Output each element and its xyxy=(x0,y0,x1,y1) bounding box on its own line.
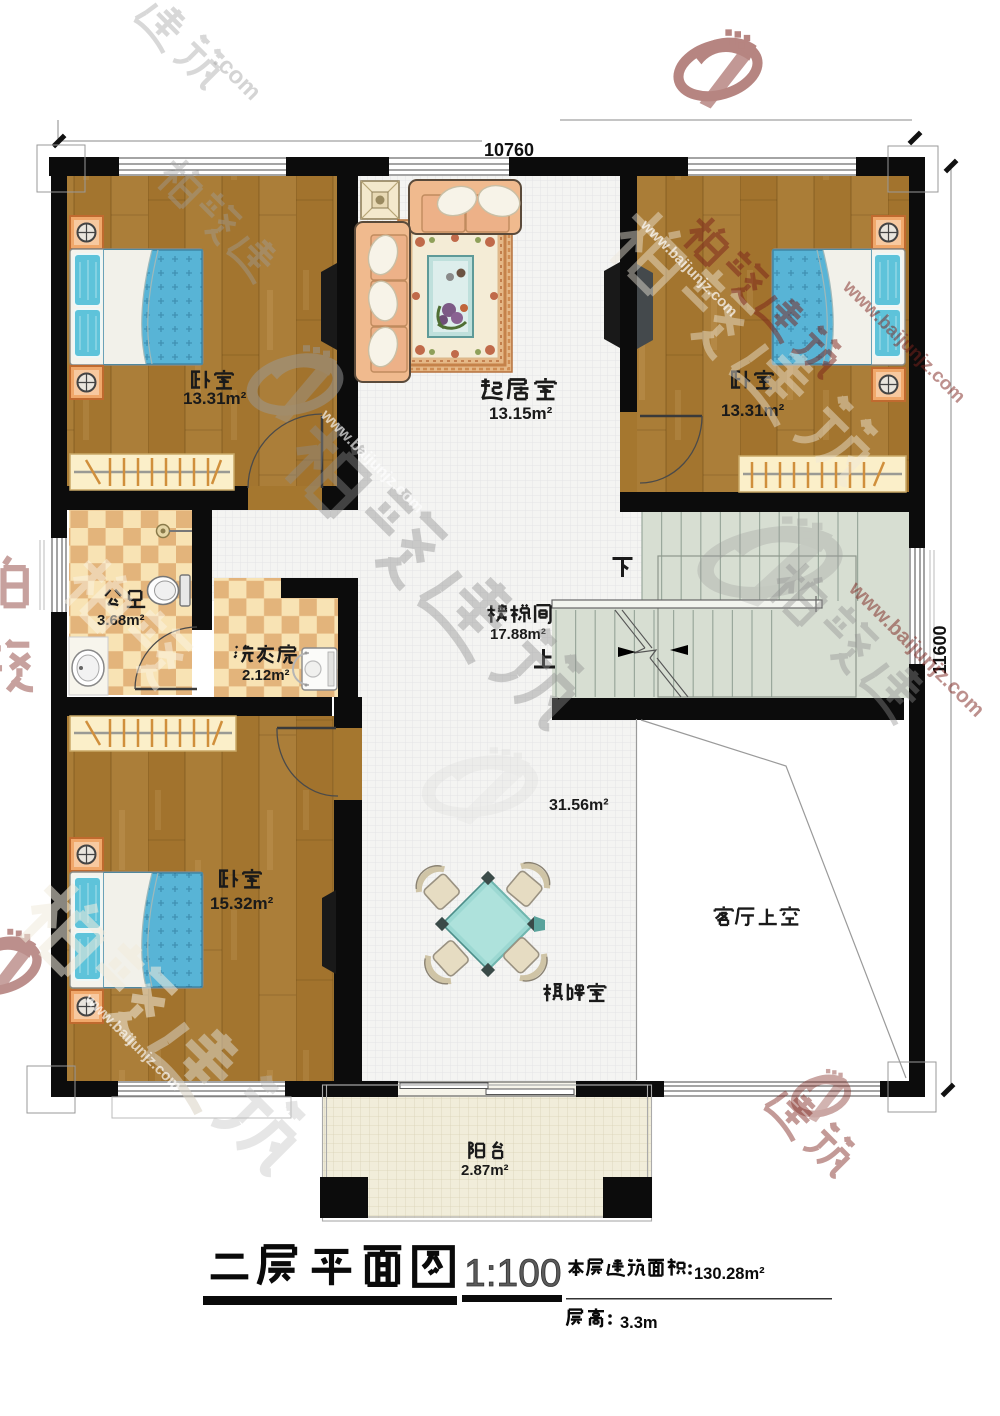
svg-text:3.3m: 3.3m xyxy=(620,1314,658,1332)
svg-text:13.31m²: 13.31m² xyxy=(183,389,247,408)
svg-text:2.12m²: 2.12m² xyxy=(242,667,290,684)
svg-text:13.15m²: 13.15m² xyxy=(489,404,553,423)
svg-text:2.87m²: 2.87m² xyxy=(461,1162,509,1179)
svg-text:10760: 10760 xyxy=(484,140,534,160)
svg-text:15.32m²: 15.32m² xyxy=(210,894,274,913)
svg-text:31.56m²: 31.56m² xyxy=(549,797,609,814)
svg-text:1:100: 1:100 xyxy=(464,1252,562,1295)
svg-text:130.28m²: 130.28m² xyxy=(694,1265,765,1283)
